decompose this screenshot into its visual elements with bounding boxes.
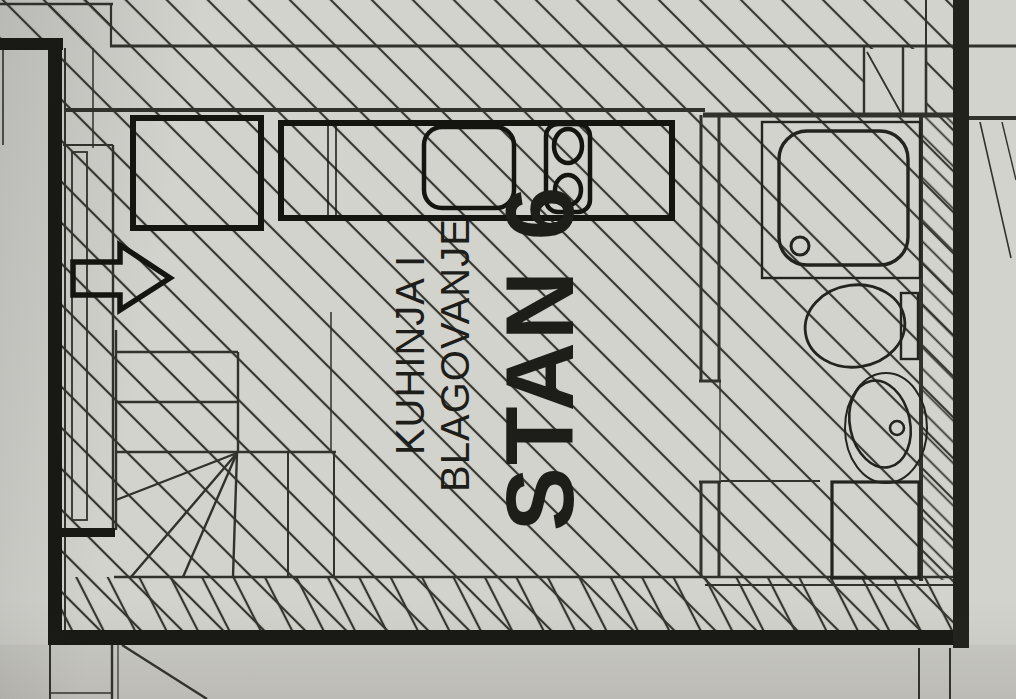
wall-left [48,38,62,632]
wall-left-step [62,528,115,537]
floorplan-drawing: KUHINJA I BLAGOVANJE STAN 6 [0,0,1016,699]
apartment-label: STAN 6 [486,185,593,531]
wall-section-band [953,0,969,648]
area-below-outer-wall [0,645,1016,699]
floorplan-photo: KUHINJA I BLAGOVANJE STAN 6 [0,0,1016,699]
room-label-line1: KUHINJA I [388,255,432,455]
vent-shaft-cells [864,49,926,114]
hatch-zones [0,0,954,632]
wall-bottom [48,630,966,645]
room-label-line2: BLAGOVANJE [433,218,477,492]
